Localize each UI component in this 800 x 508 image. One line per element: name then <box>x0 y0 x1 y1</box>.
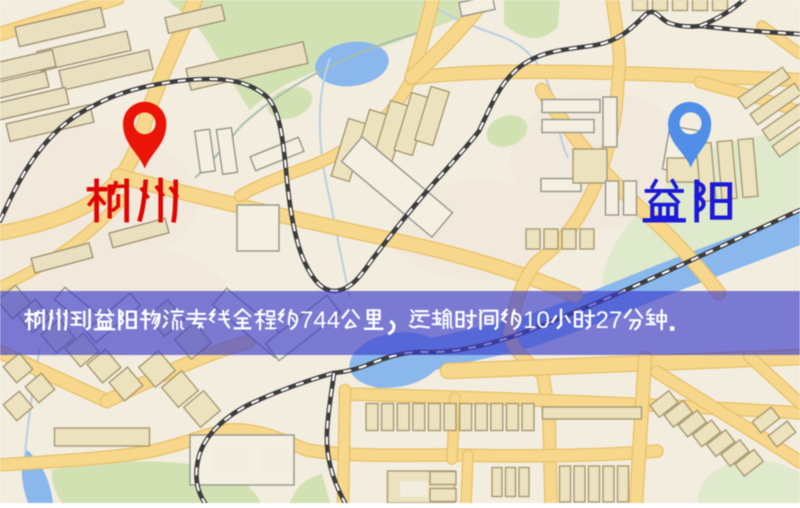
svg-text:744: 744 <box>300 307 340 334</box>
svg-text:10: 10 <box>523 307 550 334</box>
svg-text:27: 27 <box>596 307 623 334</box>
